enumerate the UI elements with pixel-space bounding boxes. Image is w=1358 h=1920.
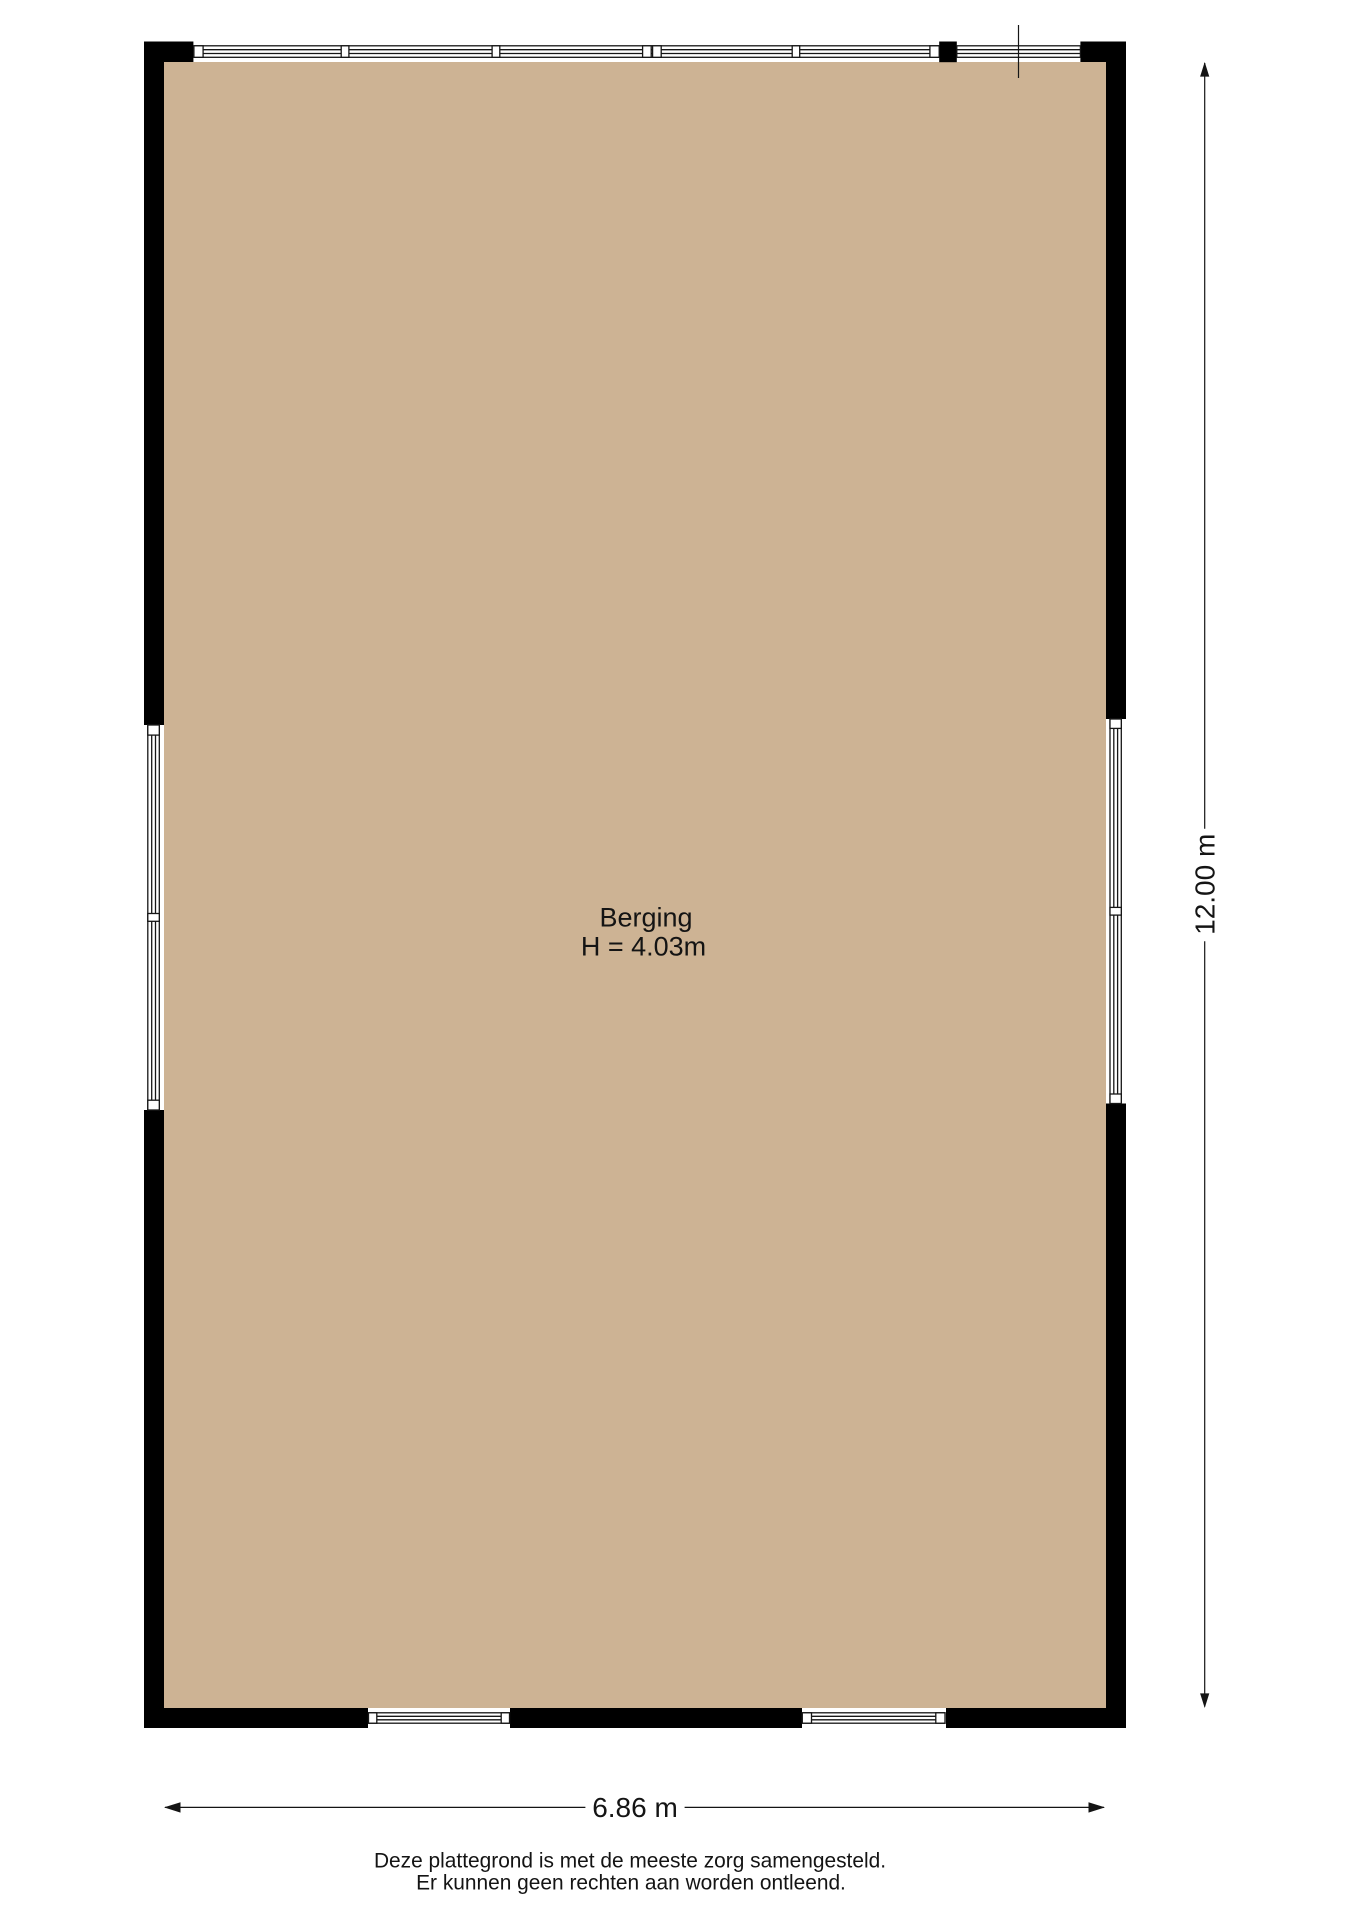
- svg-text:12.00 m: 12.00 m: [1190, 834, 1221, 935]
- svg-text:Berging: Berging: [599, 903, 692, 933]
- svg-text:Er kunnen geen rechten aan wor: Er kunnen geen rechten aan worden ontlee…: [416, 1871, 846, 1894]
- svg-text:6.86 m: 6.86 m: [592, 1792, 678, 1823]
- svg-text:Deze plattegrond is met de mee: Deze plattegrond is met de meeste zorg s…: [374, 1850, 886, 1873]
- svg-text:H = 4.03m: H = 4.03m: [581, 932, 706, 962]
